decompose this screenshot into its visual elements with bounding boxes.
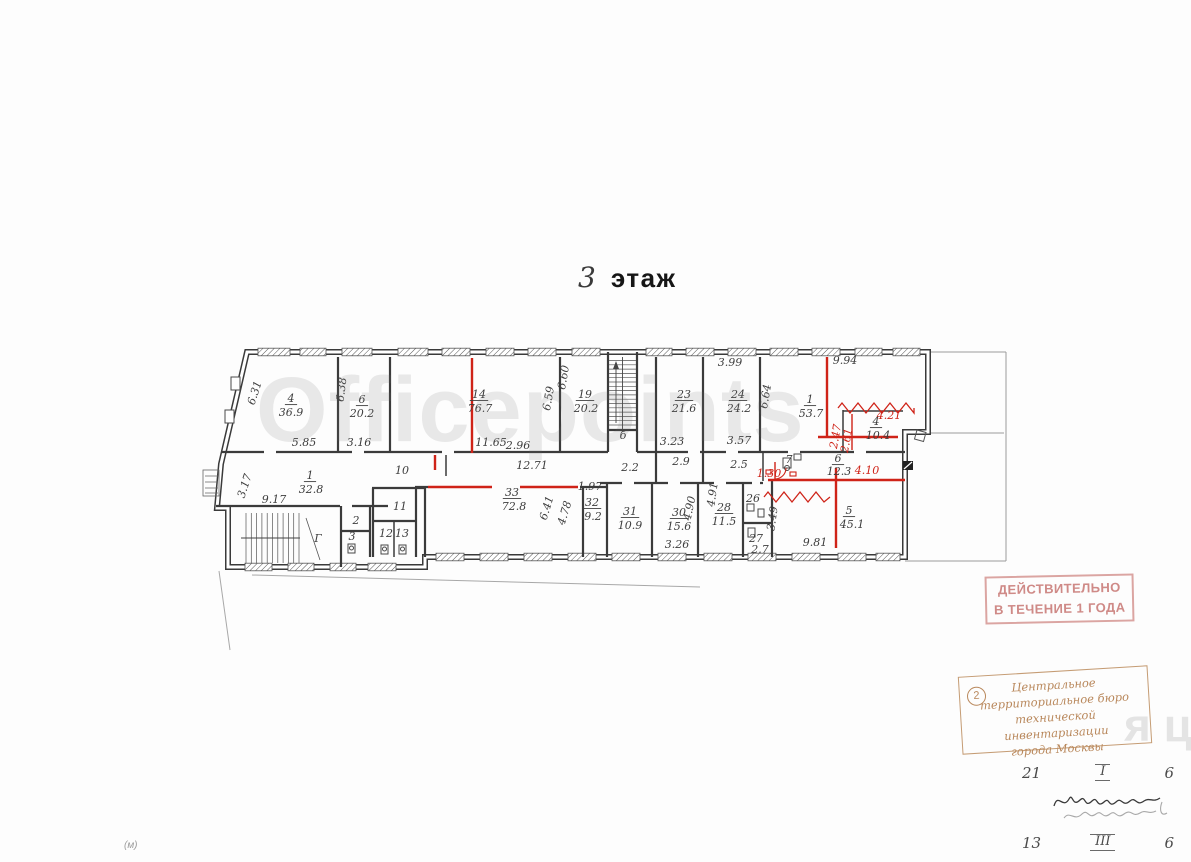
room-number-label: 5 [846, 504, 853, 517]
room-area-label: 21.6 [671, 402, 697, 415]
dimension-label: 3.57 [727, 434, 752, 447]
dimension-label: 9.94 [833, 354, 858, 367]
note-value: 6 [1164, 834, 1174, 852]
dimension-label: 11.65 [475, 436, 507, 449]
note-roman-numeral: I [1095, 764, 1110, 781]
room-area-label: 45.1 [839, 518, 865, 531]
dimension-label: 4.10 [854, 464, 880, 477]
corridor-width-label: 2.9 [671, 455, 690, 468]
staircase-label: Г [313, 532, 322, 545]
dimension-label: 3.17 [235, 472, 255, 499]
room-number-label: 11 [393, 500, 407, 513]
dimension-label: 4.90 [680, 495, 698, 523]
room-number-label: 14 [472, 388, 486, 401]
room-area-label: 20.2 [573, 402, 599, 415]
dimension-label: 6.64 [757, 383, 774, 409]
room-area-label: 24.2 [726, 402, 752, 415]
room-area-label: 11.5 [712, 515, 737, 528]
note-value: 21 [1022, 764, 1041, 782]
dimension-label: 3.26 [665, 538, 690, 551]
corridor-width-label: 2.2 [620, 461, 639, 474]
dimension-label: 6.41 [537, 494, 557, 521]
room-number-label: 33 [505, 486, 519, 499]
validity-stamp: ДЕЙСТВИТЕЛЬНО В ТЕЧЕНИЕ 1 ГОДА [985, 573, 1135, 624]
room-area-label: 53.7 [799, 407, 824, 420]
dimension-label: 3.16 [347, 436, 372, 449]
room-number-label: 3 [349, 530, 356, 543]
corridor-width-label: 2.7 [750, 543, 769, 556]
staircase-label: б [620, 429, 627, 442]
room-number-label: 7 [786, 453, 793, 466]
red-zigzag-demolished-wall [764, 492, 830, 502]
room-number-label: 23 [676, 388, 691, 401]
door-marker [903, 461, 913, 470]
room-number-label: 32 [585, 496, 599, 509]
room-number-label: 12 [379, 527, 393, 540]
room-number-label: 2 [352, 514, 360, 527]
room-number-label: 28 [716, 501, 731, 514]
dimension-label: 1.97 [578, 480, 603, 493]
floor-word: этаж [611, 263, 677, 294]
dimension-label: 6.31 [245, 379, 265, 406]
dimension-label: 3.99 [718, 356, 743, 369]
dimension-label: 6.38 [334, 377, 350, 403]
dimension-label: 6.60 [555, 364, 572, 390]
signature [1046, 782, 1178, 830]
room-area-label: 20.2 [349, 407, 375, 420]
dimension-label: 9.81 [803, 536, 828, 549]
room-number-label: 24 [730, 388, 745, 401]
room-area-label: 10.4 [866, 429, 891, 442]
dimension-label: 12.71 [516, 459, 548, 472]
room-number-label: 1 [307, 469, 314, 482]
room-area-label: 15.6 [667, 520, 692, 533]
room-number-label: 19 [578, 388, 592, 401]
room-area-label: 36.9 [279, 406, 304, 419]
staircase-treads [241, 357, 636, 563]
room-number-label: 6 [835, 452, 842, 465]
dimension-label: 5.85 [292, 436, 317, 449]
dimension-label: 3.49 [764, 505, 780, 531]
room-area-label: 9.2 [584, 510, 602, 523]
room-number-label: 26 [745, 492, 760, 505]
inventory-note-row: 13 III 6 [1022, 834, 1174, 852]
bureau-stamp: 2 Центральное территориальное бюро техни… [958, 665, 1152, 754]
note-value: 13 [1022, 834, 1041, 852]
room-area-label: 76.7 [468, 402, 493, 415]
floor-number: 3 [578, 261, 596, 294]
scanned-floor-plan-page: 436.9620.21476.71920.22321.62424.2153.74… [0, 0, 1191, 862]
room-area-label: 72.8 [502, 500, 527, 513]
room-number-label: 6 [359, 393, 366, 406]
corridor-width-label: 2.5 [729, 458, 748, 471]
inventory-note-row: 21 I 6 [1022, 764, 1174, 782]
dimension-label: 1.30 [757, 467, 782, 480]
validity-stamp-line2: В ТЕЧЕНИЕ 1 ГОДА [987, 598, 1132, 621]
signature-light [1064, 802, 1167, 818]
room-number-label: 31 [623, 505, 637, 518]
room-number-label: 1 [807, 393, 814, 406]
room-area-label: 10.9 [618, 519, 643, 532]
dimension-label: 3.23 [660, 435, 685, 448]
page-title: 3 этаж [578, 261, 676, 294]
room-area-label: 12.3 [827, 465, 852, 478]
corridor-width-label: 10 [395, 464, 409, 477]
dimension-label: 4.78 [555, 499, 575, 527]
room-number-label: 13 [395, 527, 409, 540]
dimension-label: 9.17 [262, 493, 287, 506]
note-value: 6 [1164, 764, 1174, 782]
margin-mark: (м) [124, 840, 138, 851]
room-area-label: 32.8 [299, 483, 324, 496]
dimension-label: 4.21 [876, 409, 902, 422]
note-roman-numeral: III [1090, 834, 1115, 851]
dimension-label: 2.96 [505, 439, 531, 452]
room-number-label: 4 [287, 392, 295, 405]
